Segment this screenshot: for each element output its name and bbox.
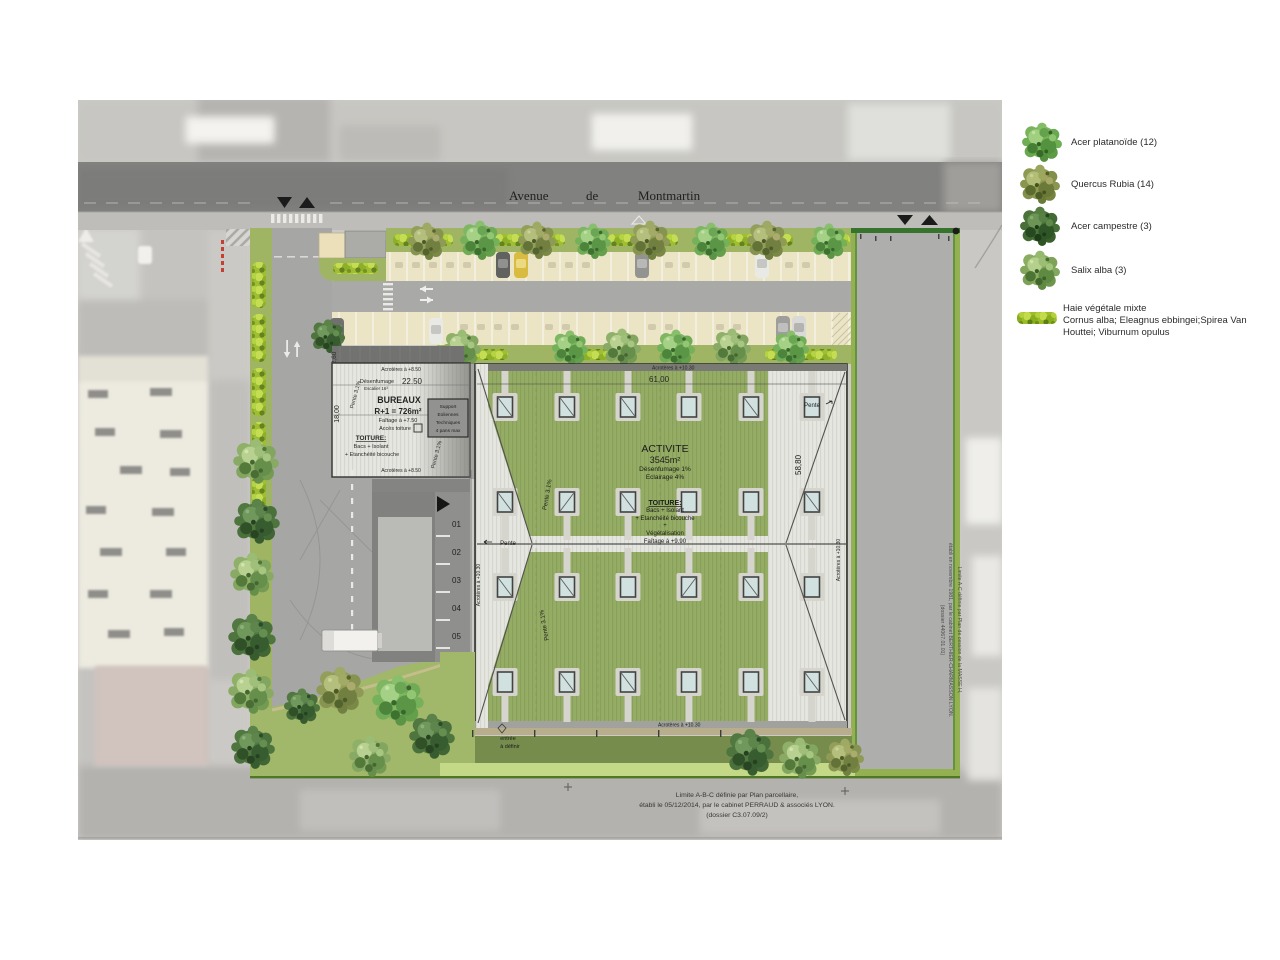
- svg-text:Acer platanoïde (12): Acer platanoïde (12): [1071, 137, 1157, 148]
- svg-text:Houttei; Viburnum opulus: Houttei; Viburnum opulus: [1063, 327, 1170, 338]
- svg-text:Acer campestre (3): Acer campestre (3): [1071, 221, 1152, 232]
- svg-text:Haie végétale mixte: Haie végétale mixte: [1063, 303, 1146, 314]
- svg-text:Cornus alba; Eleagnus ebbingei: Cornus alba; Eleagnus ebbingei;Spirea Va…: [1063, 315, 1247, 326]
- svg-text:Quercus Rubia (14): Quercus Rubia (14): [1071, 179, 1154, 190]
- svg-text:Salix alba (3): Salix alba (3): [1071, 265, 1126, 276]
